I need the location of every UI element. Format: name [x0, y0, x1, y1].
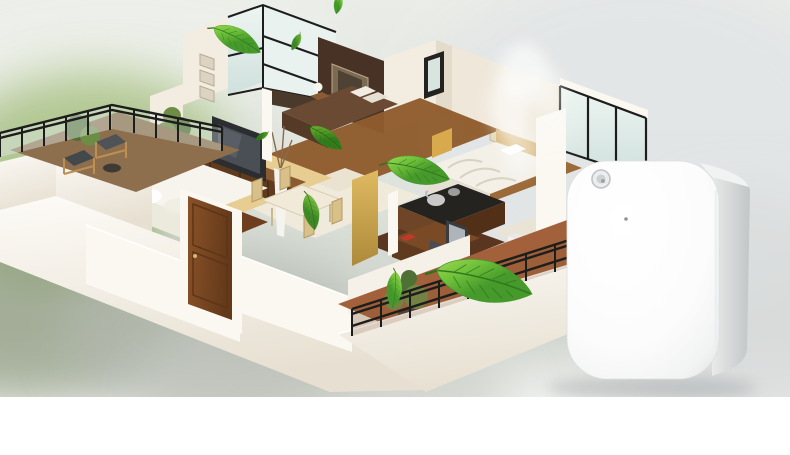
gold-wardrobe-panel	[352, 170, 378, 266]
entry-door	[188, 196, 232, 320]
dining-chair	[280, 166, 290, 190]
dining-chair	[252, 178, 262, 202]
side-table	[103, 164, 121, 173]
dining-chair	[332, 198, 342, 224]
kettle	[427, 194, 445, 206]
pinhole-indicator	[624, 217, 628, 221]
small-window-glass	[428, 57, 440, 92]
door-knob	[193, 254, 197, 258]
wall-picture-frames	[200, 54, 214, 102]
scene-canvas	[0, 0, 790, 455]
partition-wall	[388, 190, 398, 256]
tv-partition	[262, 88, 272, 162]
product-showcase-image	[0, 0, 790, 455]
lamp-shade	[314, 83, 323, 92]
pot	[448, 188, 460, 196]
foliage	[401, 270, 417, 286]
light-sensor-dot	[601, 179, 605, 183]
bottom-white-strip	[0, 397, 790, 455]
mist-puff	[542, 108, 570, 148]
